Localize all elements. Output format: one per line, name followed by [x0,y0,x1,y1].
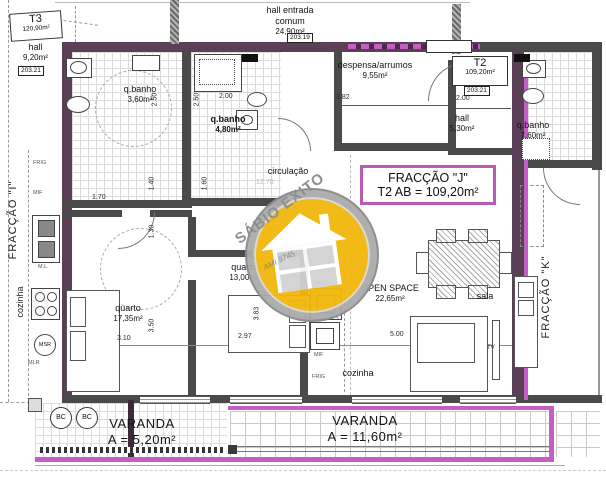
dim-quarto1-w: 3.10 [117,335,131,342]
sink-icon [310,322,340,350]
room-label-qbanho-i: q.banho 3,60m² [105,84,175,104]
grid-line-a [75,6,76,42]
dim-circ-len: 12.70 [256,179,274,186]
wall-outer-right [592,52,602,170]
chair-icon [436,285,456,299]
sink-icon [66,58,92,78]
room-name: q.banho [508,120,558,131]
dim-quarto2-h: 3.83 [253,307,260,321]
ref-badge-left: 203.21 [18,66,44,76]
chair-icon [436,229,456,243]
wall-top-left [62,42,348,52]
room-label-qbanho-j: q.banho 4,80m² [193,114,263,134]
chair-icon [416,252,429,274]
sink-double-icon [32,215,60,263]
unit-box-t3: T3 120,90m² [9,10,63,42]
wall-quarto-divider-a [188,217,196,257]
room-area: 5,30m² [437,124,487,134]
window-quarto1 [140,396,210,404]
railing-right-b [236,451,550,452]
room-name: q.banho [193,114,263,125]
chair-icon [468,229,488,243]
dim-line-despensa [340,105,448,106]
bed-fraction-k [514,276,538,368]
varanda-name: VARANDA [315,413,415,429]
room-name: despensa/arrumos [315,60,435,71]
fraction-j-box: FRACÇÃO "J" T2 AB = 109,20m² [360,165,496,205]
door-arc-bath-k [543,168,580,205]
wall-bath-j-bottom [191,198,281,206]
vent-icon [242,54,258,62]
sofa-icon [410,316,488,392]
appliance-msr: MSR [34,334,56,356]
fraction-k-label: FRACÇÃO "K" [540,207,556,387]
shower-icon [194,54,242,92]
t2-label: T2 [453,57,507,69]
appliance-frig-i: FRIG [33,160,46,166]
varanda-area: A = 5,20m² [92,432,192,448]
dim-open-w: 5.00 [390,331,404,338]
room-name: cozinha [333,368,383,379]
room-name: q.banho [105,84,175,95]
appliance-mlr: MLR [28,360,40,366]
railing-left [40,447,226,453]
dim-qbanho-j-w: 2.00 [219,93,233,100]
shower-icon [522,138,550,160]
room-label-cozinha-i: cozinha [15,272,27,332]
dim-despensa-w: 3.82 [336,94,350,101]
fraction-j-title: FRACÇÃO "J" [369,171,487,185]
wall-bath-divider [182,52,191,207]
room-area: 4,80m² [193,125,263,135]
room-name: hall [8,42,63,53]
wall-outer-right-thin [598,170,600,398]
door-arc-circulacao [278,118,311,151]
room-area: 3,60m² [105,95,175,105]
railing-post [228,445,237,454]
varanda-area: A = 11,60m² [315,429,415,445]
toilet-icon [522,88,544,104]
dim-circ-c: 1.30 [148,225,155,239]
wall-despensa-bottom [334,143,454,151]
property-line-corner [0,402,30,403]
t3-leader-line [58,19,98,26]
sink-icon [522,60,546,78]
dim-hall-j-w: 2.00 [456,95,470,102]
property-line-bottom [0,470,606,471]
dim-circ-b: 1.60 [201,177,208,191]
unit-box-t2: T2 109,20m² [452,56,508,86]
wall-quarto1-top-b [150,210,192,217]
cooktop-icon [31,288,60,320]
column-varanda [28,398,42,412]
floor-plan: T3 120,90m² hall 9,20m² 203.21 hall entr… [0,0,606,477]
dim-circ-a: 1.40 [148,177,155,191]
wall-quarto2-top-a [196,250,252,257]
dim-qbanho-i-h: 2.50 [151,93,158,107]
room-label-sala: sala [465,291,505,302]
varanda-boundary-right [549,406,554,462]
wall-bath-i-bottom [62,200,192,208]
room-label-cozinha-j: cozinha [333,368,383,379]
room-area: 9,20m² [8,53,63,63]
room-name: hall [437,113,487,124]
dim-kitchen-i-w: 1.70 [92,194,106,201]
room-name: sala [465,291,505,302]
room-label-despensa: despensa/arrumos 9,55m² [315,60,435,80]
appliance-frig-j: FRIG [312,374,325,380]
window-openspace [352,396,442,404]
appliance-ml-i: M.L. [38,264,49,270]
room-label-qbanho-k: q.banho 7,60m² [508,120,558,140]
varanda-edge-line [35,465,565,466]
wall-bath-k-bottom [520,160,594,168]
varanda-left-label: VARANDA A = 5,20m² [92,416,192,447]
ref-badge-entry: 203.19 [287,33,313,43]
entry-line2: comum [240,16,340,27]
entry-hall-label: hall entrada comum 24,90m² [240,5,340,36]
railing-right-a [236,446,550,447]
wall-quarto1-top-a [62,210,122,217]
lintel-beam [426,40,472,53]
appliance-mif-j: MIF [314,352,323,358]
room-label-hall-j: hall 5,30m² [437,113,487,133]
toilet-icon [247,92,267,107]
dim-quarto1-h: 3.50 [148,319,155,333]
window-sala [460,396,516,404]
chair-icon [499,252,512,274]
fraction-j-subtitle: T2 AB = 109,20m² [369,185,487,199]
room-name: quarto [93,303,163,314]
window-quarto2 [230,396,302,404]
varanda-right-label: VARANDA A = 11,60m² [315,413,415,444]
entry-line1: hall entrada [240,5,340,16]
dim-line-hall-j [455,108,511,109]
varanda-name: VARANDA [92,416,192,432]
wall-top-right [480,42,602,52]
wall-hall-j-bottom [448,148,512,155]
wall-quarto-divider-b [188,280,196,398]
column-a [170,0,179,44]
turning-circle [95,70,172,147]
dining-table [428,240,500,288]
varanda-boundary-top [228,406,554,410]
room-area: 9,55m² [315,71,435,81]
dim-quarto2-w: 2.97 [238,333,252,340]
bc-marker-1: BC [50,407,72,429]
t2-area: 109,20m² [453,69,507,76]
appliance-mif-i: MIF [33,190,42,196]
grid-line-top [55,2,470,3]
tiled-floor-varanda-k [556,411,600,457]
dim-qbanho-j-h: 2.50 [193,93,200,107]
bc-marker-2: BC [76,407,98,429]
room-area: 7,60m² [508,131,558,141]
room-label-hall-i: hall 9,20m² [8,42,63,62]
varanda-boundary-bottom [35,457,554,462]
tv-label: TV [487,345,495,351]
toilet-icon [66,96,90,113]
counter-icon [132,55,160,71]
vent-icon [514,54,530,62]
